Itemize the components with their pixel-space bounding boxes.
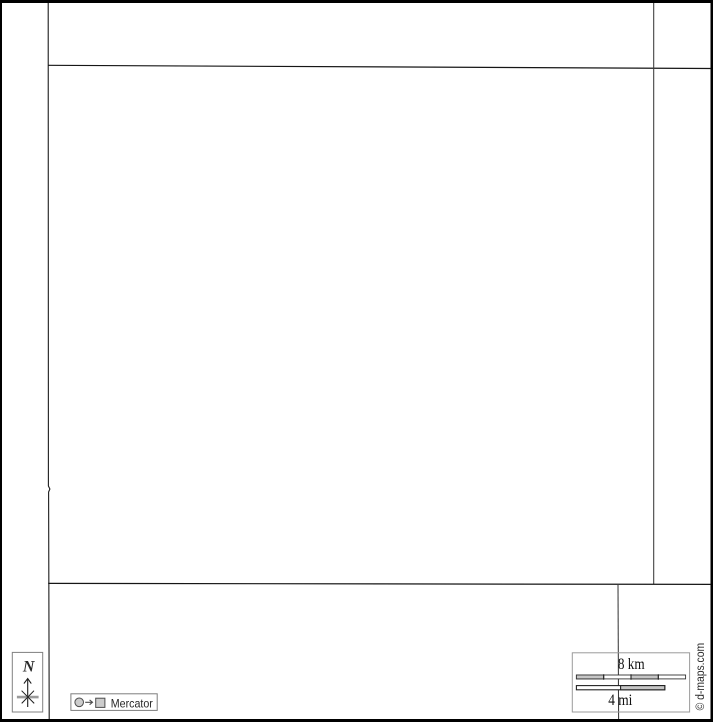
svg-text:8 km: 8 km <box>618 656 645 673</box>
svg-text:N: N <box>22 659 36 676</box>
svg-text:4 mi: 4 mi <box>608 692 632 709</box>
svg-text:Mercator: Mercator <box>111 696 153 710</box>
svg-text:© d-maps.com: © d-maps.com <box>693 643 707 711</box>
